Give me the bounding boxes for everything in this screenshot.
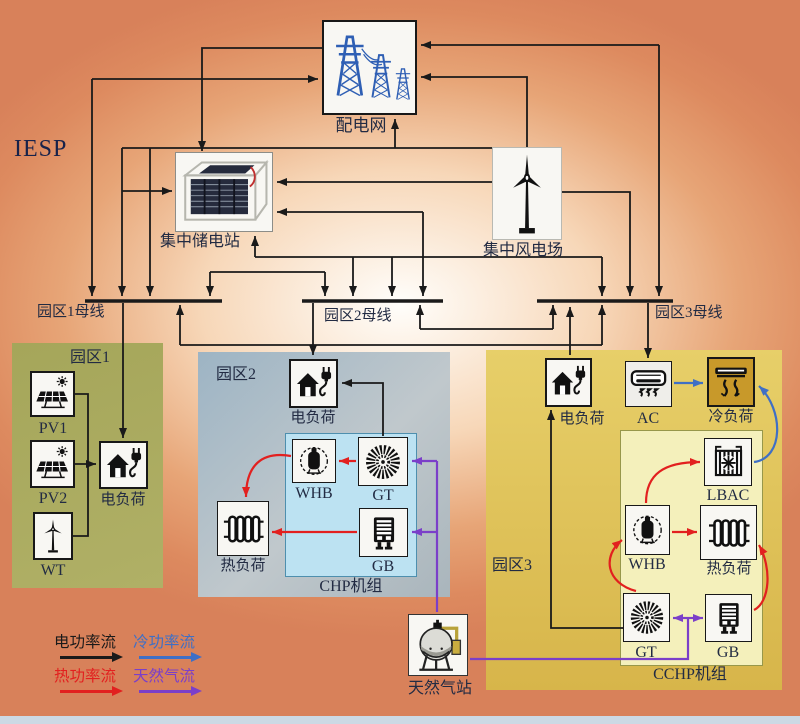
waste-heat-boiler-icon — [294, 441, 334, 481]
heat-arrow-swatch — [60, 690, 112, 693]
pv-icon — [33, 444, 73, 484]
wind-farm-node — [492, 147, 562, 240]
electric-arrow-swatch — [60, 656, 112, 659]
park3-heat-load-label: 热负荷 — [706, 561, 751, 578]
transmission-towers-icon — [326, 24, 414, 112]
park2-whb-label: WHB — [295, 485, 332, 503]
waste-heat-boiler-icon — [627, 508, 668, 552]
park2-gt-label: GT — [372, 487, 393, 505]
park3-elec-load-label: 电负荷 — [559, 411, 604, 428]
park3-cool-load-node — [707, 357, 755, 407]
park1-title: 园区1 — [70, 349, 110, 367]
gas-boiler-icon — [708, 597, 750, 639]
gas-station-node — [408, 614, 468, 676]
park2-gb-node — [359, 508, 408, 557]
storage-label: 集中储电站 — [160, 233, 240, 251]
park3-elec-load-node — [545, 358, 592, 407]
gas-turbine-icon — [626, 596, 668, 639]
legend-gas-label: 天然气流 — [133, 664, 211, 686]
park3-heat-load-node — [700, 505, 757, 560]
bus1-label: 园区1母线 — [37, 304, 105, 321]
legend-electric: 电功率流 — [54, 630, 132, 659]
legend-heat: 热功率流 — [54, 664, 132, 693]
park1-elec-load-node — [99, 441, 148, 489]
wind-turbine-icon — [35, 515, 71, 557]
storage-station-node — [175, 152, 273, 232]
wt-node — [33, 512, 73, 560]
park3-gb-node — [705, 594, 752, 642]
park2-heat-load-node — [217, 501, 269, 556]
house-plug-icon — [548, 362, 589, 403]
pv1-label: PV1 — [39, 420, 67, 438]
park3-gt-node — [623, 593, 670, 642]
cooling-arrow-swatch — [139, 656, 191, 659]
bus2-label: 园区2母线 — [324, 308, 392, 325]
pv2-label: PV2 — [39, 490, 67, 508]
park2-elec-load-node — [289, 359, 338, 408]
radiator-icon — [220, 505, 267, 553]
battery-rack-icon — [178, 156, 270, 228]
legend-cooling-label: 冷功率流 — [133, 630, 211, 652]
park3-whb-label: WHB — [628, 556, 665, 574]
park3-cool-load-label: 冷负荷 — [708, 409, 753, 426]
chp-unit-label: CHP机组 — [319, 578, 382, 596]
park3-whb-node — [625, 505, 670, 555]
park2-gb-label: GB — [372, 558, 394, 576]
park3-gt-label: GT — [635, 644, 656, 662]
legend-electric-label: 电功率流 — [54, 630, 132, 652]
grid-label: 配电网 — [336, 117, 387, 136]
park1-elec-load-label: 电负荷 — [100, 492, 145, 509]
air-conditioner-icon — [627, 363, 670, 405]
legend-heat-label: 热功率流 — [54, 664, 132, 686]
iesp-diagram: IESP 配电网 集中储电站 集中风电场 天然气站 园区1母线 园区2母线 园区… — [0, 0, 800, 724]
cchp-unit-label: CCHP机组 — [653, 666, 727, 684]
park2-elec-load-label: 电负荷 — [290, 410, 335, 427]
absorption-chiller-icon — [707, 441, 750, 484]
bus3-label: 园区3母线 — [655, 305, 723, 322]
park3-title: 园区3 — [492, 557, 532, 575]
house-plug-icon — [293, 363, 335, 405]
park2-heat-load-label: 热负荷 — [220, 558, 265, 575]
park3-ac-node — [625, 361, 672, 407]
park2-gt-node — [358, 437, 408, 486]
gas-station-label: 天然气站 — [408, 680, 472, 698]
cool-air-icon — [710, 360, 752, 404]
radiator-icon — [704, 509, 754, 557]
park2-whb-node — [292, 439, 336, 483]
gas-tank-icon — [410, 616, 466, 674]
gas-boiler-icon — [362, 511, 406, 555]
legend-gas: 天然气流 — [133, 664, 211, 693]
wind-farm-label: 集中风电场 — [483, 242, 563, 260]
park2-title: 园区2 — [216, 366, 256, 384]
distribution-grid-node — [322, 20, 417, 115]
iesp-title: IESP — [14, 136, 67, 163]
bottom-strip — [0, 716, 800, 724]
wind-turbine-icon — [498, 151, 556, 237]
house-plug-icon — [103, 444, 145, 486]
park3-ac-label: AC — [637, 410, 659, 428]
park3-lbac-label: LBAC — [707, 487, 750, 505]
park3-lbac-node — [704, 438, 752, 486]
gas-turbine-icon — [361, 440, 405, 484]
park3-gb-label: GB — [717, 644, 739, 662]
legend-cooling: 冷功率流 — [133, 630, 211, 659]
gas-arrow-swatch — [139, 690, 191, 693]
pv-icon — [33, 374, 73, 414]
pv2-node — [30, 440, 75, 488]
pv1-node — [30, 371, 75, 417]
wt-label: WT — [41, 562, 66, 580]
